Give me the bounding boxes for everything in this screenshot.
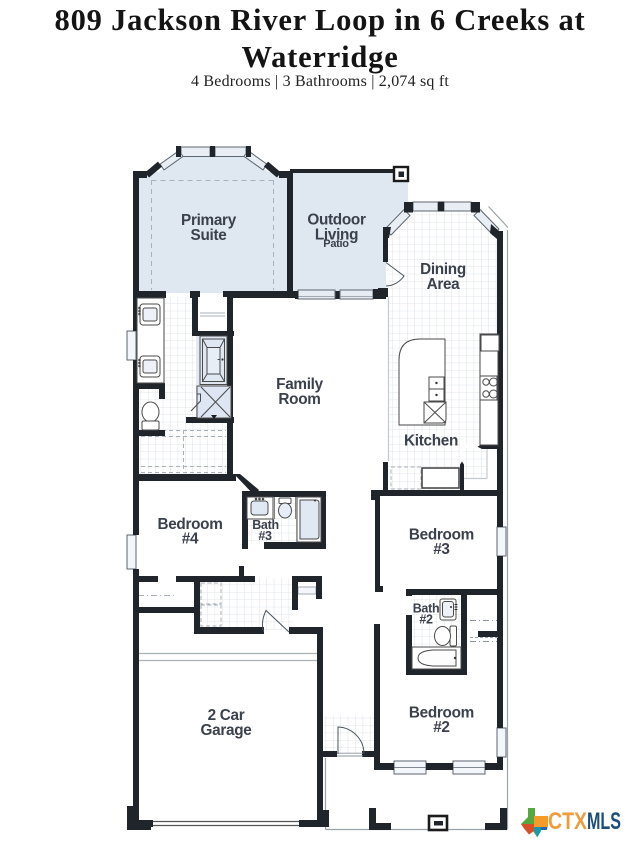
svg-text:MLS: MLS (587, 808, 621, 835)
svg-text:#3: #3 (258, 529, 272, 543)
svg-text:#2: #2 (419, 613, 433, 627)
svg-text:#2: #2 (433, 719, 449, 736)
svg-text:#3: #3 (433, 541, 449, 558)
svg-text:CTX: CTX (548, 808, 587, 835)
svg-text:Garage: Garage (201, 722, 252, 739)
svg-text:Kitchen: Kitchen (404, 433, 458, 450)
svg-text:Living: Living (315, 227, 358, 244)
svg-text:Suite: Suite (191, 227, 227, 244)
svg-text:Area: Area (427, 276, 461, 293)
svg-text:Room: Room (278, 391, 320, 408)
svg-text:#4: #4 (182, 531, 199, 548)
